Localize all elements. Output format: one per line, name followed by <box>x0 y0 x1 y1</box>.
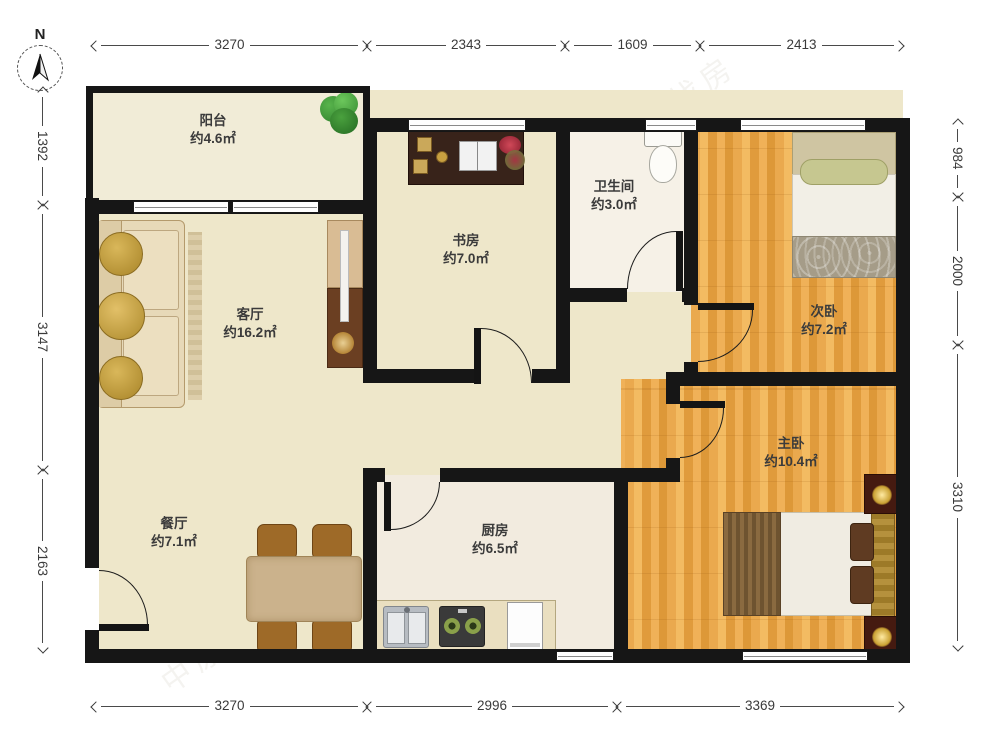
study-door <box>474 328 481 384</box>
window <box>133 201 229 213</box>
room-label-dining-room: 餐厅约7.1㎡ <box>119 515 229 550</box>
dimension-value: 3270 <box>209 38 249 52</box>
study-desk <box>408 131 524 185</box>
wall <box>556 288 627 302</box>
dimension-value: 2413 <box>781 38 821 52</box>
room-name: 餐厅 <box>119 515 229 533</box>
master-bedroom-door <box>680 401 725 408</box>
nightstand-lamp <box>864 474 898 514</box>
room-name: 卫生间 <box>559 178 669 196</box>
wall <box>896 118 910 663</box>
tv-cabinet <box>327 220 363 368</box>
dimension-left-2: 3147 <box>34 205 50 470</box>
dimension-bottom-3: 3369 <box>617 699 903 713</box>
dimension-bottom-1: 3270 <box>92 699 367 713</box>
north-label: N <box>16 26 64 43</box>
entrance-door <box>99 624 149 631</box>
room-name: 主卧 <box>736 435 846 453</box>
room-area: 约3.0㎡ <box>559 196 669 214</box>
dimension-value: 3147 <box>35 317 49 357</box>
wall <box>614 482 628 649</box>
room-area: 约7.2㎡ <box>769 321 879 339</box>
north-compass: N <box>16 26 64 91</box>
north-arrow-icon <box>23 51 57 85</box>
dimension-value: 1392 <box>35 126 49 166</box>
dimension-value: 1609 <box>612 38 652 52</box>
plant <box>318 92 360 134</box>
pillow <box>850 566 874 604</box>
window <box>645 119 697 131</box>
dimension-right-2: 2000 <box>949 197 965 345</box>
dimension-right-1: 984 <box>949 120 965 197</box>
sofa <box>97 220 185 408</box>
room-label-bathroom: 卫生间约3.0㎡ <box>559 178 669 213</box>
room-label-balcony: 阳台约4.6㎡ <box>158 112 268 147</box>
dining-chair <box>312 524 352 560</box>
room-area: 约4.6㎡ <box>158 130 268 148</box>
wall <box>684 132 698 305</box>
bed-second-bedroom <box>792 132 896 278</box>
wall <box>363 482 377 649</box>
bathroom-door <box>676 231 683 291</box>
wall <box>363 468 385 482</box>
room-label-second-bedroom: 次卧约7.2㎡ <box>769 303 879 338</box>
dining-chair <box>257 524 297 560</box>
wall <box>556 132 570 383</box>
stove <box>439 606 485 647</box>
dimension-bottom-2: 2996 <box>367 699 617 713</box>
second-bedroom-door <box>698 303 754 310</box>
dimension-value: 3310 <box>950 477 964 517</box>
wall <box>666 372 910 386</box>
wall <box>666 386 680 404</box>
wall <box>363 132 377 383</box>
room-label-study: 书房约7.0㎡ <box>411 232 521 267</box>
room-name: 次卧 <box>769 303 879 321</box>
wall <box>440 468 680 482</box>
room-area: 约10.4㎡ <box>736 453 846 471</box>
dimension-top-4: 2413 <box>700 38 903 52</box>
room-label-living-room: 客厅约16.2㎡ <box>195 306 305 341</box>
appliance <box>507 602 543 651</box>
dimension-value: 2343 <box>446 38 486 52</box>
dimension-top-2: 2343 <box>367 38 565 52</box>
wall <box>85 198 99 568</box>
room-name: 客厅 <box>195 306 305 324</box>
dimension-left-3: 2163 <box>34 470 50 652</box>
room-area: 约16.2㎡ <box>195 324 305 342</box>
dimension-value: 3369 <box>740 699 780 713</box>
room-area: 约6.5㎡ <box>440 540 550 558</box>
sink <box>383 606 429 648</box>
window <box>232 201 319 213</box>
kitchen-counter <box>370 600 556 652</box>
room-name: 阳台 <box>158 112 268 130</box>
wall <box>86 93 93 205</box>
room-area: 约7.0㎡ <box>411 250 521 268</box>
compass-ring <box>17 45 63 91</box>
window <box>408 119 526 131</box>
wall <box>86 86 370 93</box>
dimension-value: 2000 <box>950 251 964 291</box>
headboard <box>871 506 895 622</box>
pillow <box>850 523 874 561</box>
window <box>556 651 614 661</box>
wall <box>85 630 99 663</box>
room-name: 书房 <box>411 232 521 250</box>
dimension-value: 984 <box>950 142 964 175</box>
dimension-top-3: 1609 <box>565 38 700 52</box>
wall <box>363 369 477 383</box>
room-label-master-bedroom: 主卧约10.4㎡ <box>736 435 846 470</box>
dimension-value: 3270 <box>209 699 249 713</box>
dimension-value: 2163 <box>35 541 49 581</box>
floor-plan: 中原找房 中原找房 中原找房 中原找房 <box>0 0 1000 750</box>
room-area: 约7.1㎡ <box>119 533 229 551</box>
entrance-opening <box>85 568 99 630</box>
dimension-right-3: 3310 <box>949 345 965 650</box>
window <box>742 651 868 661</box>
room-label-kitchen: 厨房约6.5㎡ <box>440 522 550 557</box>
dining-table <box>246 556 362 622</box>
dimension-top-1: 3270 <box>92 38 367 52</box>
kitchen-door <box>384 482 391 531</box>
dimension-left-1: 1392 <box>34 88 50 205</box>
room-name: 厨房 <box>440 522 550 540</box>
dimension-value: 2996 <box>472 699 512 713</box>
window <box>740 119 866 131</box>
